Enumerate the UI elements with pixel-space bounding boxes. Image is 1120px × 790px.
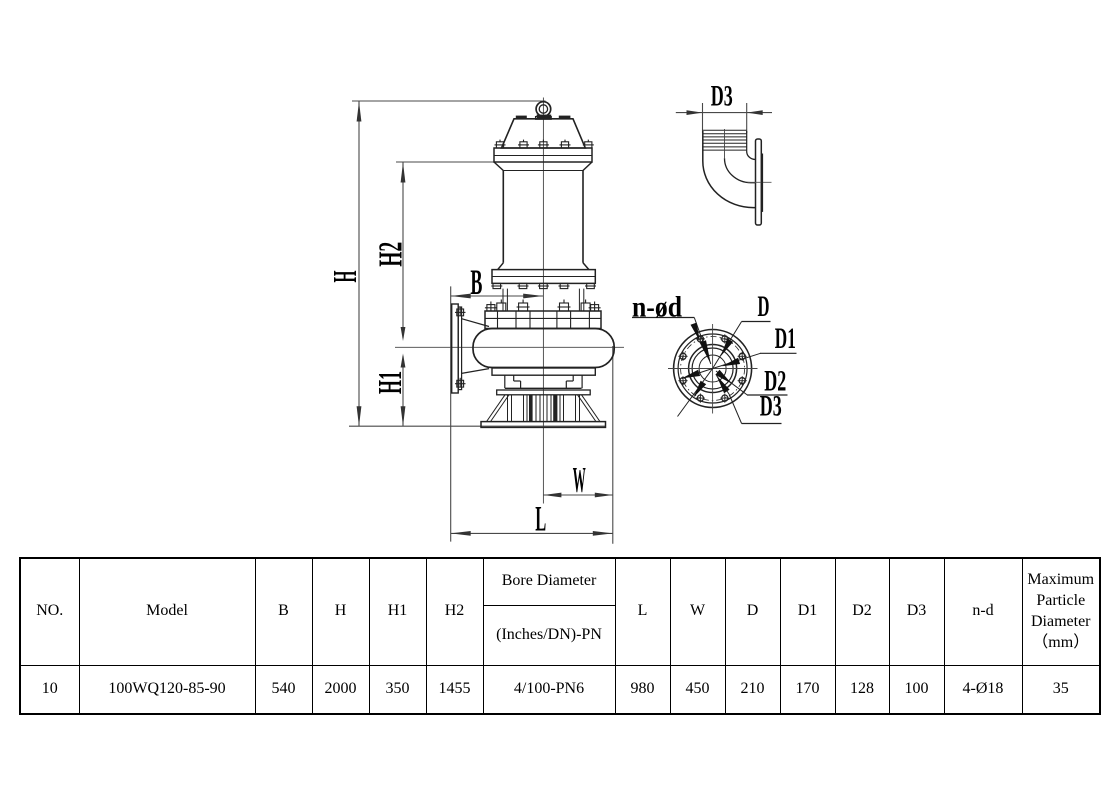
svg-text:D1: D1: [775, 322, 796, 355]
svg-text:H: H: [327, 271, 364, 283]
svg-text:H1: H1: [372, 371, 409, 394]
svg-text:L: L: [535, 498, 546, 538]
svg-text:H2: H2: [373, 242, 410, 267]
svg-text:D: D: [758, 290, 770, 323]
svg-text:n-ød: n-ød: [632, 291, 682, 324]
svg-text:B: B: [470, 262, 482, 302]
svg-text:W: W: [573, 459, 586, 499]
svg-text:D3: D3: [760, 390, 782, 423]
svg-text:D3: D3: [711, 80, 733, 113]
